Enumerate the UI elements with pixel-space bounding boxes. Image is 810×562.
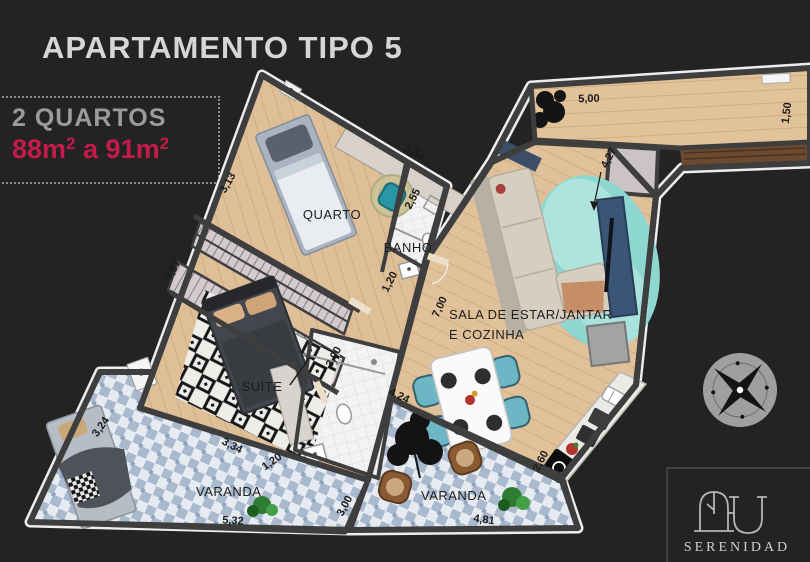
- brand-box: SERENIDAD: [667, 468, 810, 562]
- compass-rose-icon: [688, 338, 792, 442]
- brand-name: SERENIDAD: [684, 540, 790, 555]
- room-label-varanda-left: VARANDA: [196, 484, 261, 499]
- terrace-door: [762, 73, 790, 83]
- floorplan-drawing: QUARTO BANHO SUÍTE SALA DE ESTAR/JANTAR …: [0, 0, 810, 562]
- dim-terraco-500: 5,00: [578, 93, 600, 106]
- dim-varanda-left-532: 5,32: [222, 514, 244, 527]
- room-label-sala-line2: E COZINHA: [449, 327, 524, 342]
- room-label-quarto: QUARTO: [303, 207, 361, 222]
- fridge: [587, 322, 630, 366]
- floorplan-page: APARTAMENTO TIPO 5 2 QUARTOS 88m2 a 91m2: [0, 0, 810, 562]
- room-label-banho: BANHO: [384, 240, 433, 255]
- room-label-sala-line1: SALA DE ESTAR/JANTAR: [449, 307, 612, 322]
- room-label-suite: SUÍTE: [242, 379, 283, 394]
- brand-logo-icon: [694, 492, 767, 533]
- room-label-varanda-right: VARANDA: [421, 488, 486, 503]
